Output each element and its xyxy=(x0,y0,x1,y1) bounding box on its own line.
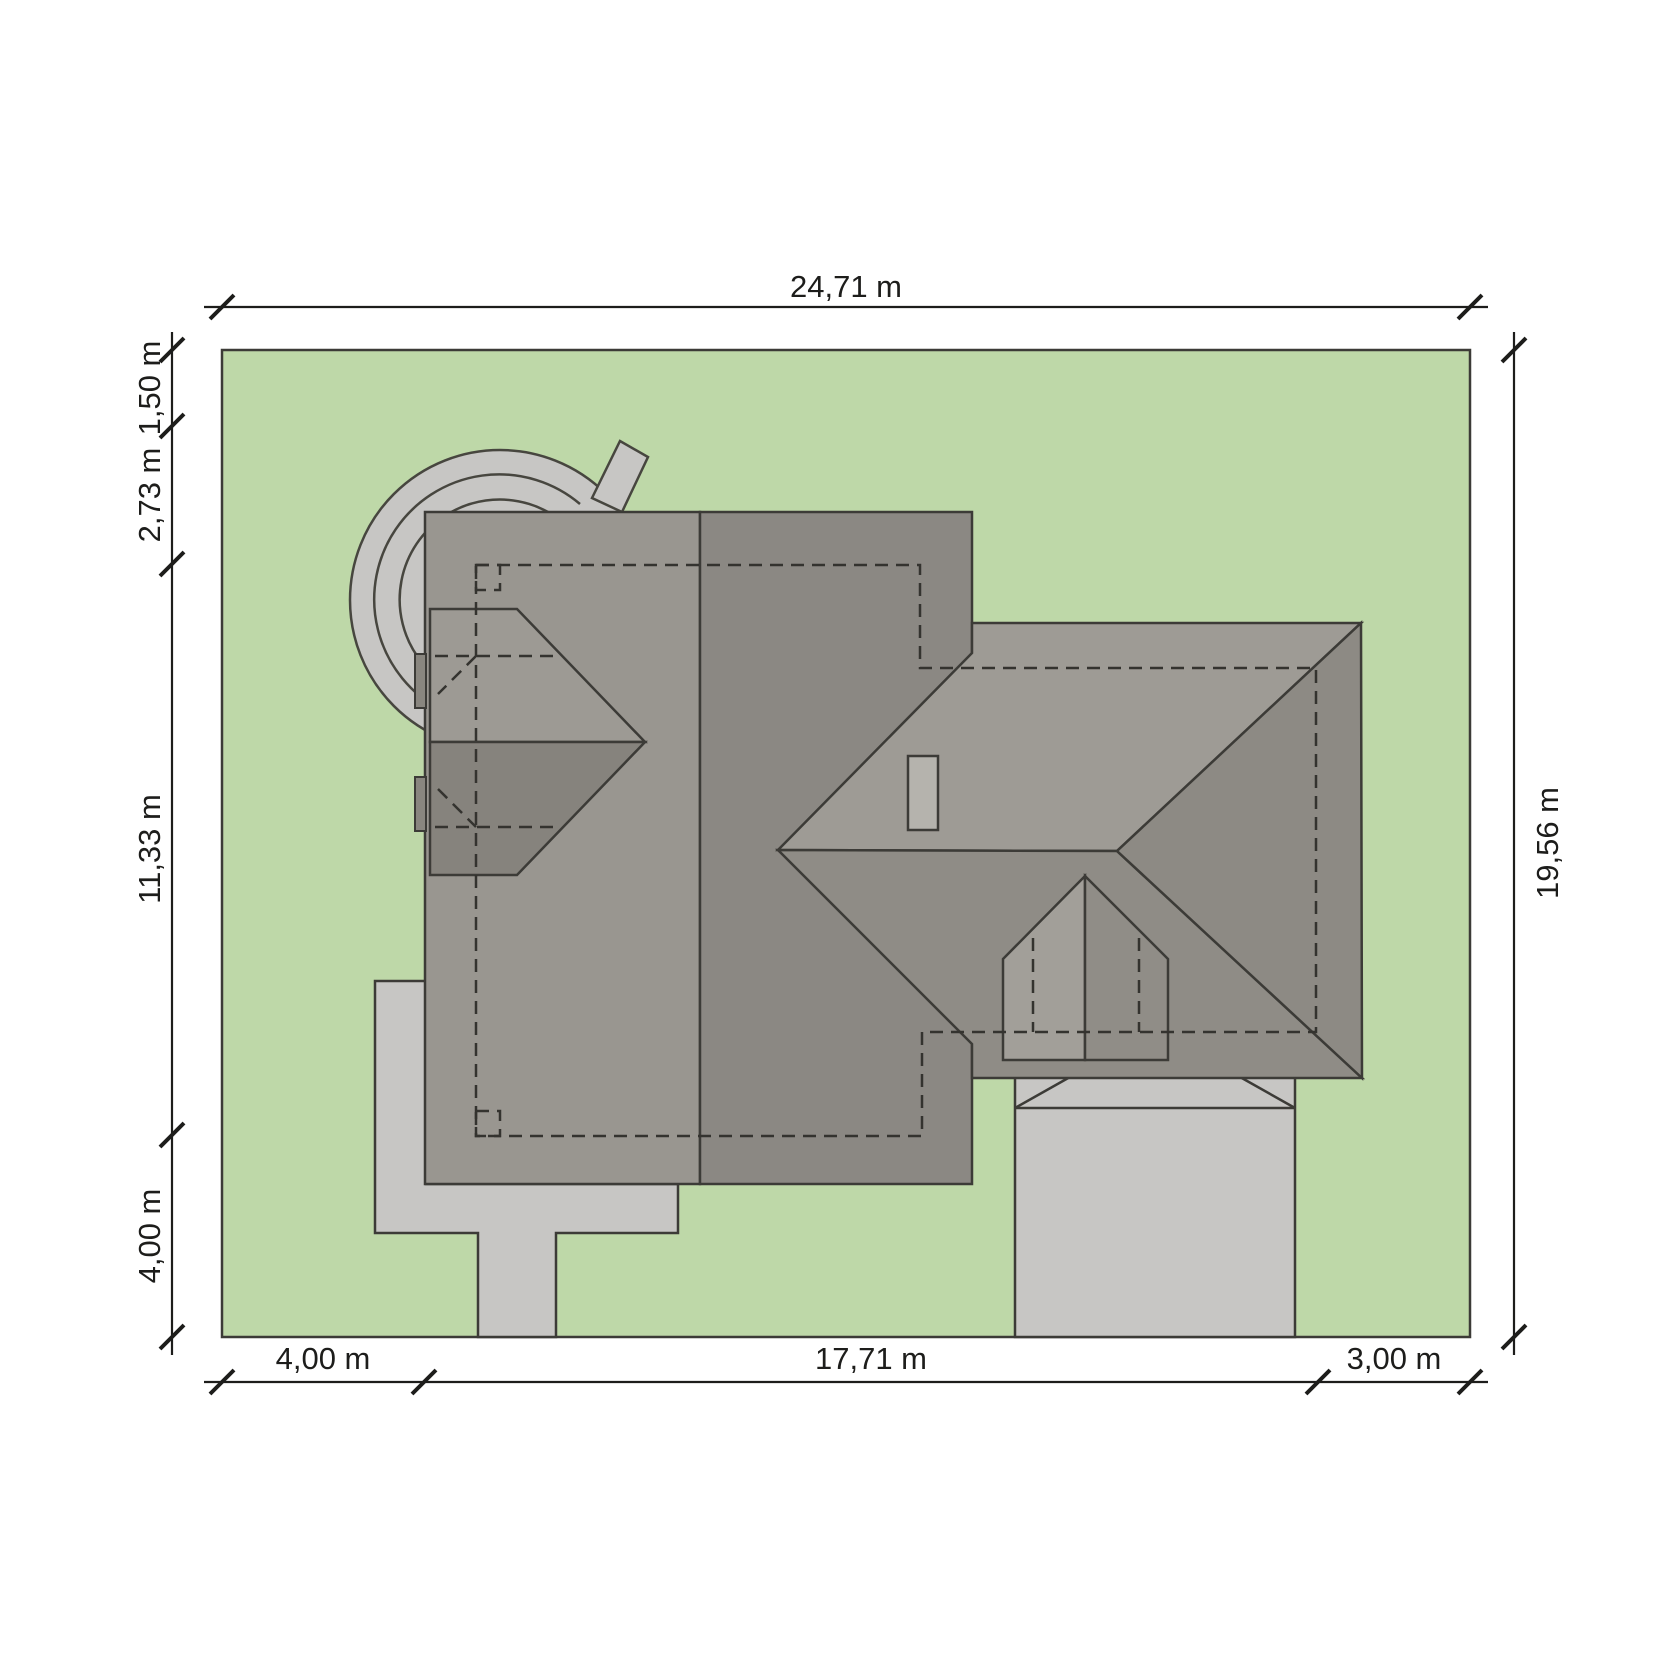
bay-stub-lower xyxy=(415,777,426,831)
site-plan-canvas: 24,71 m 19,56 m 1,50 m 2,73 m 11,33 m 4,… xyxy=(0,0,1680,1680)
dim-left-label-2: 2,73 m xyxy=(133,425,167,565)
chimney xyxy=(908,756,938,830)
driveway xyxy=(1015,1077,1295,1337)
bay-stub-upper xyxy=(415,654,426,708)
driveway-surface xyxy=(1015,1077,1295,1337)
dim-bottom-label-1: 4,00 m xyxy=(253,1342,393,1376)
dim-left-label-3: 11,33 m xyxy=(133,779,167,919)
dim-left-label-4: 4,00 m xyxy=(133,1166,167,1306)
dim-right-label: 19,56 m xyxy=(1531,773,1565,913)
site-plan-drawing xyxy=(0,0,1680,1680)
dim-top-label: 24,71 m xyxy=(776,270,916,304)
dim-bottom-label-3: 3,00 m xyxy=(1324,1342,1464,1376)
dim-bottom-label-2: 17,71 m xyxy=(801,1342,941,1376)
